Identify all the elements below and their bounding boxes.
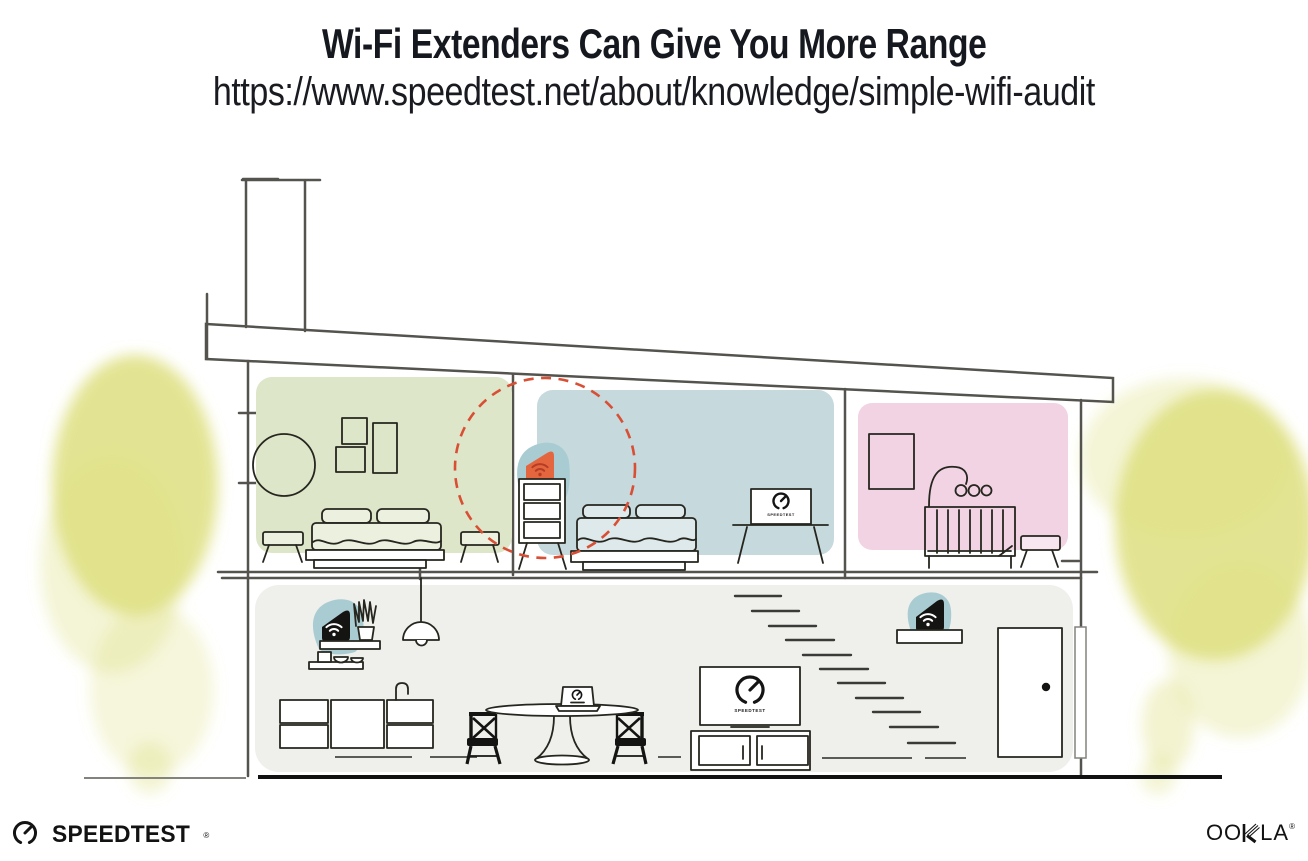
ookla-trademark: ® [1289, 822, 1295, 831]
infographic-page: Wi-Fi Extenders Can Give You More Range … [0, 0, 1308, 861]
svg-text:SPEEDTEST: SPEEDTEST [734, 708, 765, 713]
stool [1021, 536, 1060, 567]
speedtest-gauge-icon [12, 818, 46, 852]
house-cutaway-illustration: SPEEDTEST [0, 0, 1308, 861]
speedtest-logo: SPEEDTEST ® [12, 818, 209, 852]
ookla-k-icon [1242, 822, 1260, 844]
speedtest-trademark: ® [203, 831, 209, 840]
stair-shelf [897, 630, 962, 643]
source-url: https://www.speedtest.net/about/knowledg… [213, 70, 1095, 115]
downspout [1075, 627, 1086, 758]
wall-shelf-upper [320, 641, 380, 649]
tree-left [40, 355, 218, 794]
door-knob [1042, 683, 1050, 691]
media-console [691, 731, 810, 770]
tree-right [1080, 378, 1308, 795]
nursery-pink-wall [858, 403, 1068, 550]
speedtest-wordmark: SPEEDTEST [52, 821, 190, 849]
front-door [998, 628, 1062, 757]
ookla-logo: OO LA ® [1206, 822, 1295, 844]
header: Wi-Fi Extenders Can Give You More Range … [0, 0, 1308, 115]
page-title: Wi-Fi Extenders Can Give You More Range [322, 20, 986, 68]
tv-living-room: SPEEDTEST [700, 667, 800, 727]
ookla-wordmark-suffix: LA [1260, 822, 1289, 844]
ookla-wordmark-prefix: OO [1206, 822, 1242, 844]
svg-text:SPEEDTEST: SPEEDTEST [767, 512, 795, 517]
chimney [242, 179, 320, 331]
